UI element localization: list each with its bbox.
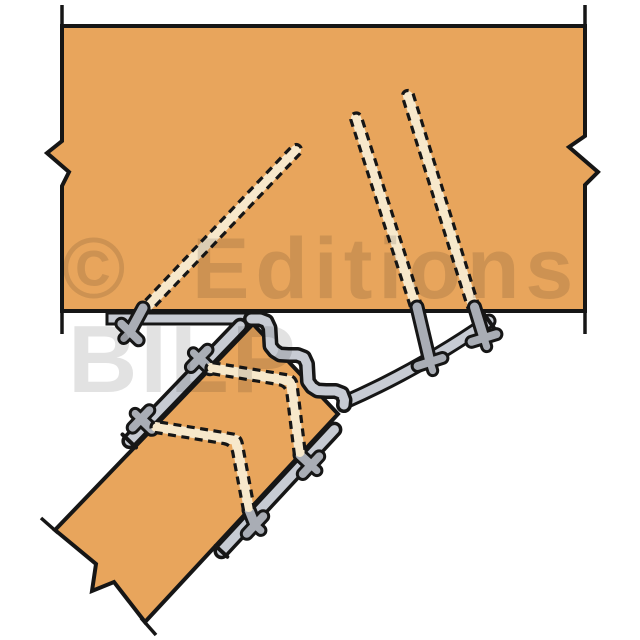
lower-wing-nail-1 — [300, 455, 319, 474]
joist-break-extension-left — [41, 518, 58, 533]
illustration-canvas: © Editions BILP — [0, 0, 640, 640]
strap-nail-left — [417, 307, 442, 371]
upper-wing-nail-2 — [133, 410, 152, 429]
joist-hanger-diagram — [0, 0, 640, 640]
lower-wing-nail-2 — [247, 510, 263, 534]
header-beam — [47, 5, 598, 334]
beam-section — [47, 26, 598, 311]
